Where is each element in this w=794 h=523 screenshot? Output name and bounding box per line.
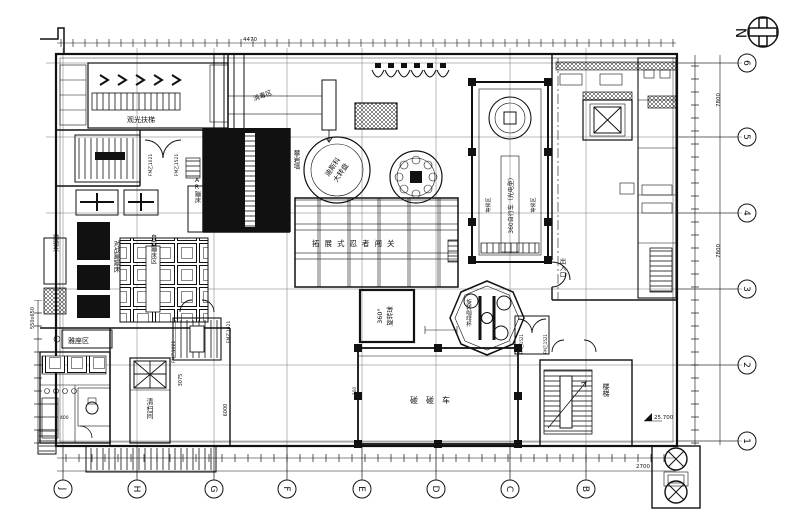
- axis-right-1: 1: [741, 438, 751, 444]
- axis-right-6: 6: [741, 60, 751, 66]
- label-cleaning: 清扫间: [146, 397, 154, 420]
- label-escalator: 观光扶梯: [127, 115, 155, 124]
- label-ninja: 拓展式忍者闯关: [312, 238, 400, 248]
- axis-bottom-j: J: [57, 487, 67, 491]
- axis-bottom-c: C: [504, 486, 514, 492]
- dim-3075: 3075: [178, 374, 184, 387]
- dim-top: 4470: [243, 37, 257, 43]
- left-stairs: FM乙1021 FM乙1521: [75, 135, 181, 182]
- dim-right-bay-1: 7800: [716, 93, 722, 107]
- label-waiting-left: 等候区: [485, 197, 492, 212]
- label-ball360-1: 360°: [376, 308, 384, 324]
- label-stairs: 楼梯: [602, 382, 610, 398]
- label-battle-trampoline: 对战蹦蹦床: [112, 239, 120, 274]
- axis-bottom-g: G: [208, 486, 218, 493]
- door-tag-fm1021-a: FM乙1021: [147, 154, 154, 177]
- dim-hydrant: 550x650: [30, 307, 36, 329]
- label-bumper: 碰碰车: [410, 395, 458, 405]
- axis-right-4: 4: [741, 210, 751, 216]
- north-arrow: N: [732, 17, 778, 47]
- bike-360-room: 360自行车（光电型） 等候区 等候区: [468, 58, 558, 300]
- dim-400: 400: [60, 415, 69, 421]
- axis-bottom-f: F: [281, 486, 291, 491]
- north-letter: N: [732, 28, 748, 38]
- axis-right-5: 5: [741, 134, 751, 140]
- door-tag-fm1521-a: FM乙1521: [173, 154, 180, 177]
- dim-elevation: 25.700: [654, 415, 674, 421]
- climbing-wall: 攀岩墙: [186, 55, 300, 232]
- label-ar-trampoline: AR蹦床: [194, 177, 201, 204]
- axis-right-2: 2: [741, 362, 751, 368]
- axis-right-3: 3: [741, 286, 751, 292]
- trampoline-zone: AR蹦床 对战蹦蹦床 自由蹦床区 抛抛乐: [44, 177, 208, 322]
- dim-bottom-right: 2700: [636, 464, 650, 470]
- label-bike360: 360自行车（光电型）: [507, 174, 515, 233]
- dim-6000: 6000: [223, 404, 229, 417]
- label-disinfection: 消毒区: [252, 88, 274, 103]
- disco-turntable: 迪斯科 大转盘: [304, 137, 370, 203]
- elevator: [583, 92, 632, 140]
- label-ball360-2: 旋转球: [385, 306, 394, 326]
- ball-360-room: 360° 旋转球: [360, 290, 414, 342]
- floor-plan-page: 4470 7800 7800 2700 550x650 3075 6000 40…: [0, 0, 794, 523]
- label-seating: 雅座区: [68, 336, 89, 345]
- label-entrance: 出入口: [558, 257, 566, 278]
- seating-area: 雅座区: [54, 330, 112, 348]
- label-coffee-cups: 旋转咖啡杯: [465, 298, 472, 328]
- dim-right-bay-2: 7800: [716, 244, 722, 258]
- axis-bottom-h: H: [131, 486, 141, 493]
- door-tag-fm1021-c: FM乙1021: [225, 321, 232, 344]
- axis-bottom-d: D: [430, 486, 440, 493]
- stairs-bottom-right: 楼梯 25.700: [540, 340, 674, 446]
- escalator-zone: 观光扶梯: [60, 63, 228, 128]
- door-tag-fm1521-c: FM乙1521: [542, 334, 548, 354]
- entrance: 出入口: [552, 257, 570, 287]
- toilets: [40, 352, 110, 443]
- axis-bottom-e: E: [356, 486, 366, 492]
- coffee-cup-ride: 旋转咖啡杯: [450, 281, 524, 355]
- label-paopao: 抛抛乐: [52, 233, 59, 252]
- ninja-course: 拓展式忍者闯关: [295, 198, 458, 287]
- bumper-car-room: 碰碰车: [354, 344, 522, 448]
- floor-plan-svg: 4470 7800 7800 2700 550x650 3075 6000 40…: [0, 0, 794, 523]
- label-climbing-wall: 攀岩墙: [292, 149, 300, 171]
- label-free-trampoline: 自由蹦床区: [150, 233, 157, 264]
- axis-bottom-b: B: [580, 486, 590, 492]
- label-waiting-right: 等候区: [530, 197, 537, 212]
- ring-ride: [390, 151, 442, 203]
